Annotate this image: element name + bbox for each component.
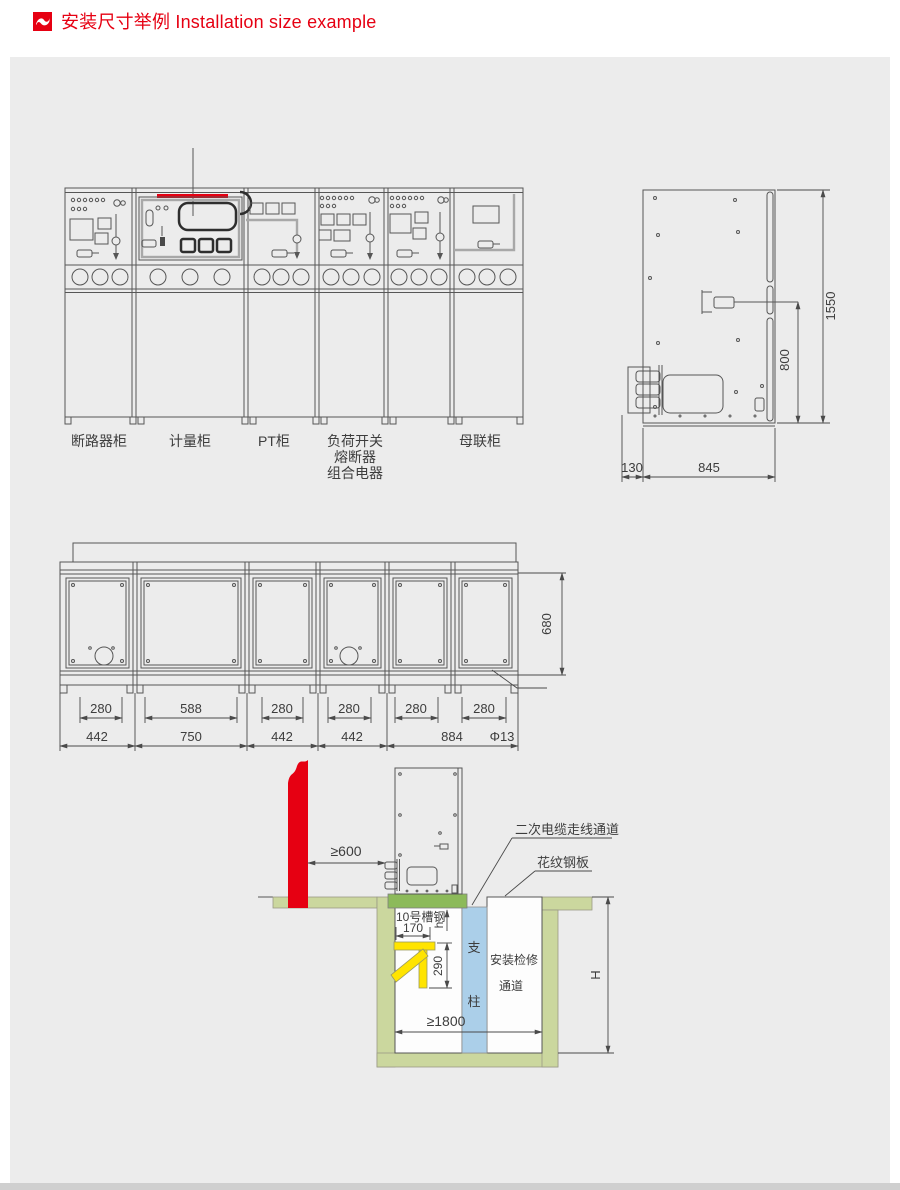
label-load-switch-line2: 熔断器 [334, 449, 376, 465]
dim-trench-1800: ≥1800 [427, 1013, 466, 1029]
label-checkered-plate: 花纹钢板 [537, 855, 589, 870]
section-view-svg: ≥600 h 170 290 ≥1800 H 二次电缆走线通道 花纹钢板 [250, 755, 680, 1120]
plan-view-svg: 280 588 280 280 280 280 442 750 442 442 … [40, 525, 600, 760]
dim-442-1: 442 [86, 729, 108, 744]
cabinet-4-details [319, 196, 379, 260]
dim-130: 130 [621, 460, 643, 475]
cabinet-2-details [139, 192, 251, 260]
trench-wall-right [542, 910, 558, 1067]
cabinet-labels: 断路器柜 计量柜 PT柜 负荷开关 熔断器 组合电器 母联柜 [71, 433, 501, 481]
dim-280-5: 280 [473, 701, 495, 716]
section-cabinet [385, 768, 462, 894]
dim-depth-H: H [588, 970, 603, 979]
label-metering-cabinet: 计量柜 [169, 433, 211, 449]
label-load-switch-line3: 组合电器 [327, 465, 383, 481]
dim-845: 845 [698, 460, 720, 475]
front-view-svg: 断路器柜 计量柜 PT柜 负荷开关 熔断器 组合电器 母联柜 [50, 140, 550, 500]
dim-280-2: 280 [271, 701, 293, 716]
label-access-line1: 安装检修 [490, 952, 538, 967]
dim-800: 800 [777, 349, 792, 371]
floor-slab-right [542, 897, 592, 910]
dim-442-2: 442 [271, 729, 293, 744]
label-channel-steel: 10号槽钢 [396, 910, 445, 924]
dim-280-1: 280 [90, 701, 112, 716]
cabinet-5-details [390, 196, 448, 260]
label-pt-cabinet: PT柜 [258, 433, 290, 449]
vent-circles [72, 269, 516, 285]
cabinet-6-details [454, 194, 514, 250]
drawing-panel: 断路器柜 计量柜 PT柜 负荷开关 熔断器 组合电器 母联柜 [10, 57, 890, 1183]
trench-chamber-right [487, 897, 542, 1053]
page-bottom-edge [0, 1183, 900, 1190]
plan-feet [60, 685, 518, 693]
side-handle [702, 290, 798, 314]
fire-wall [288, 760, 308, 908]
trench-wall-left [377, 897, 395, 1067]
dim-280-3: 280 [338, 701, 360, 716]
dim-884: 884 [441, 729, 463, 744]
plan-dim-row-top: 280 588 280 280 280 280 [80, 697, 506, 723]
dim-1550: 1550 [823, 292, 838, 321]
dim-hole-dia: Φ13 [490, 729, 515, 744]
dim-290: 290 [431, 956, 445, 976]
page-title: 安装尺寸举例 Installation size example [61, 8, 377, 34]
label-support-bottom: 柱 [467, 994, 480, 1009]
side-dim-800: 800 [777, 302, 798, 423]
cabinet-1-details [70, 198, 125, 260]
dim-588: 588 [180, 701, 202, 716]
label-bus-tie-cabinet: 母联柜 [459, 433, 501, 449]
label-load-switch-line1: 负荷开关 [327, 433, 383, 449]
logo-icon [33, 12, 52, 31]
side-dim-1550: 1550 [777, 190, 838, 423]
dim-750: 750 [180, 729, 202, 744]
side-view-svg: 1550 800 130 845 [610, 160, 900, 495]
label-access-line2: 通道 [499, 979, 523, 993]
channel-steel-bar [388, 894, 467, 908]
label-breaker-cabinet: 断路器柜 [71, 433, 127, 449]
label-support-top: 支 [467, 940, 480, 955]
dim-clearance-600: ≥600 [330, 843, 361, 859]
cabinet-feet [65, 417, 523, 424]
dim-442-3: 442 [341, 729, 363, 744]
plan-dim-680: 680 [518, 573, 566, 675]
label-cable-channel: 二次电缆走线通道 [515, 822, 619, 837]
cabinet-3-details [246, 203, 301, 259]
page-header: 安装尺寸举例 Installation size example [33, 8, 377, 34]
dim-280-4: 280 [405, 701, 427, 716]
support-column [462, 907, 487, 1053]
trench-floor [377, 1053, 558, 1067]
side-dims-bottom: 130 845 [621, 415, 775, 482]
dim-680: 680 [539, 613, 554, 635]
side-bushings [628, 365, 764, 415]
